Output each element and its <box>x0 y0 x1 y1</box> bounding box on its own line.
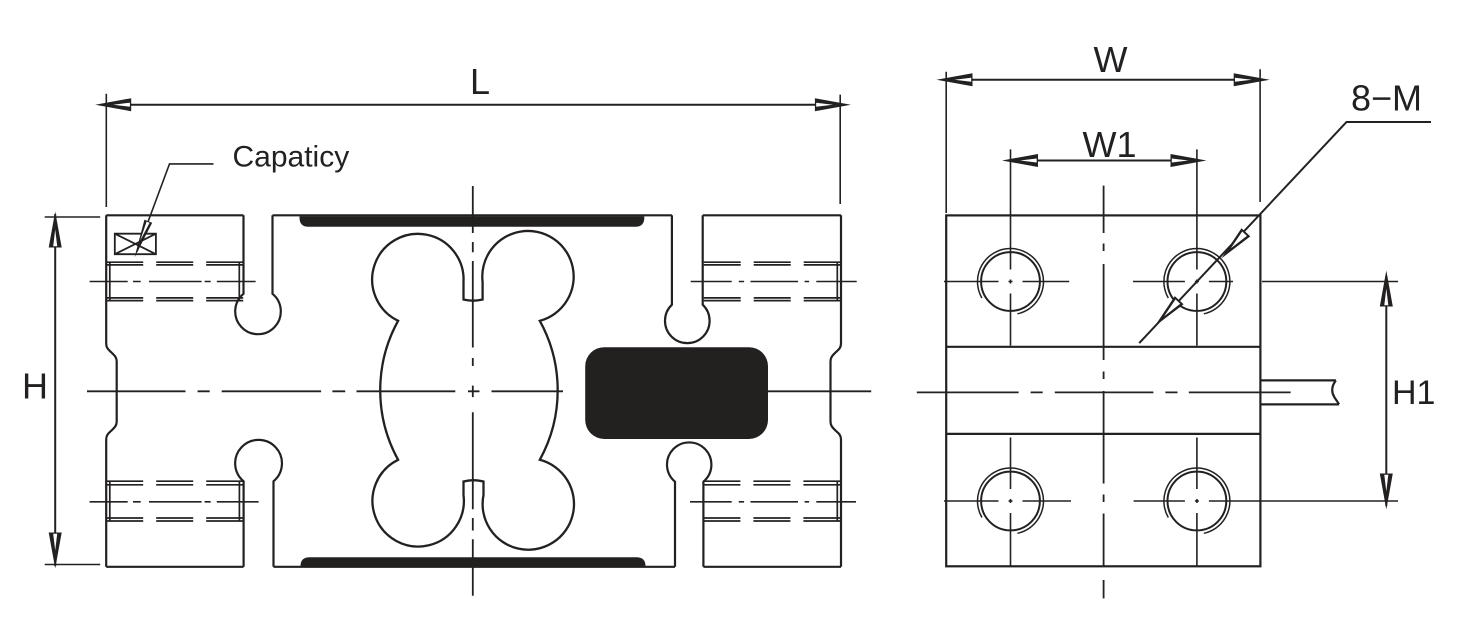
svg-text:8−M: 8−M <box>1351 78 1422 119</box>
svg-text:W: W <box>1094 39 1128 80</box>
svg-text:H: H <box>22 366 48 407</box>
svg-text:L: L <box>470 61 490 102</box>
svg-text:Capaticy: Capaticy <box>233 141 350 174</box>
svg-text:W1: W1 <box>1083 124 1137 165</box>
svg-text:H1: H1 <box>1392 374 1435 412</box>
